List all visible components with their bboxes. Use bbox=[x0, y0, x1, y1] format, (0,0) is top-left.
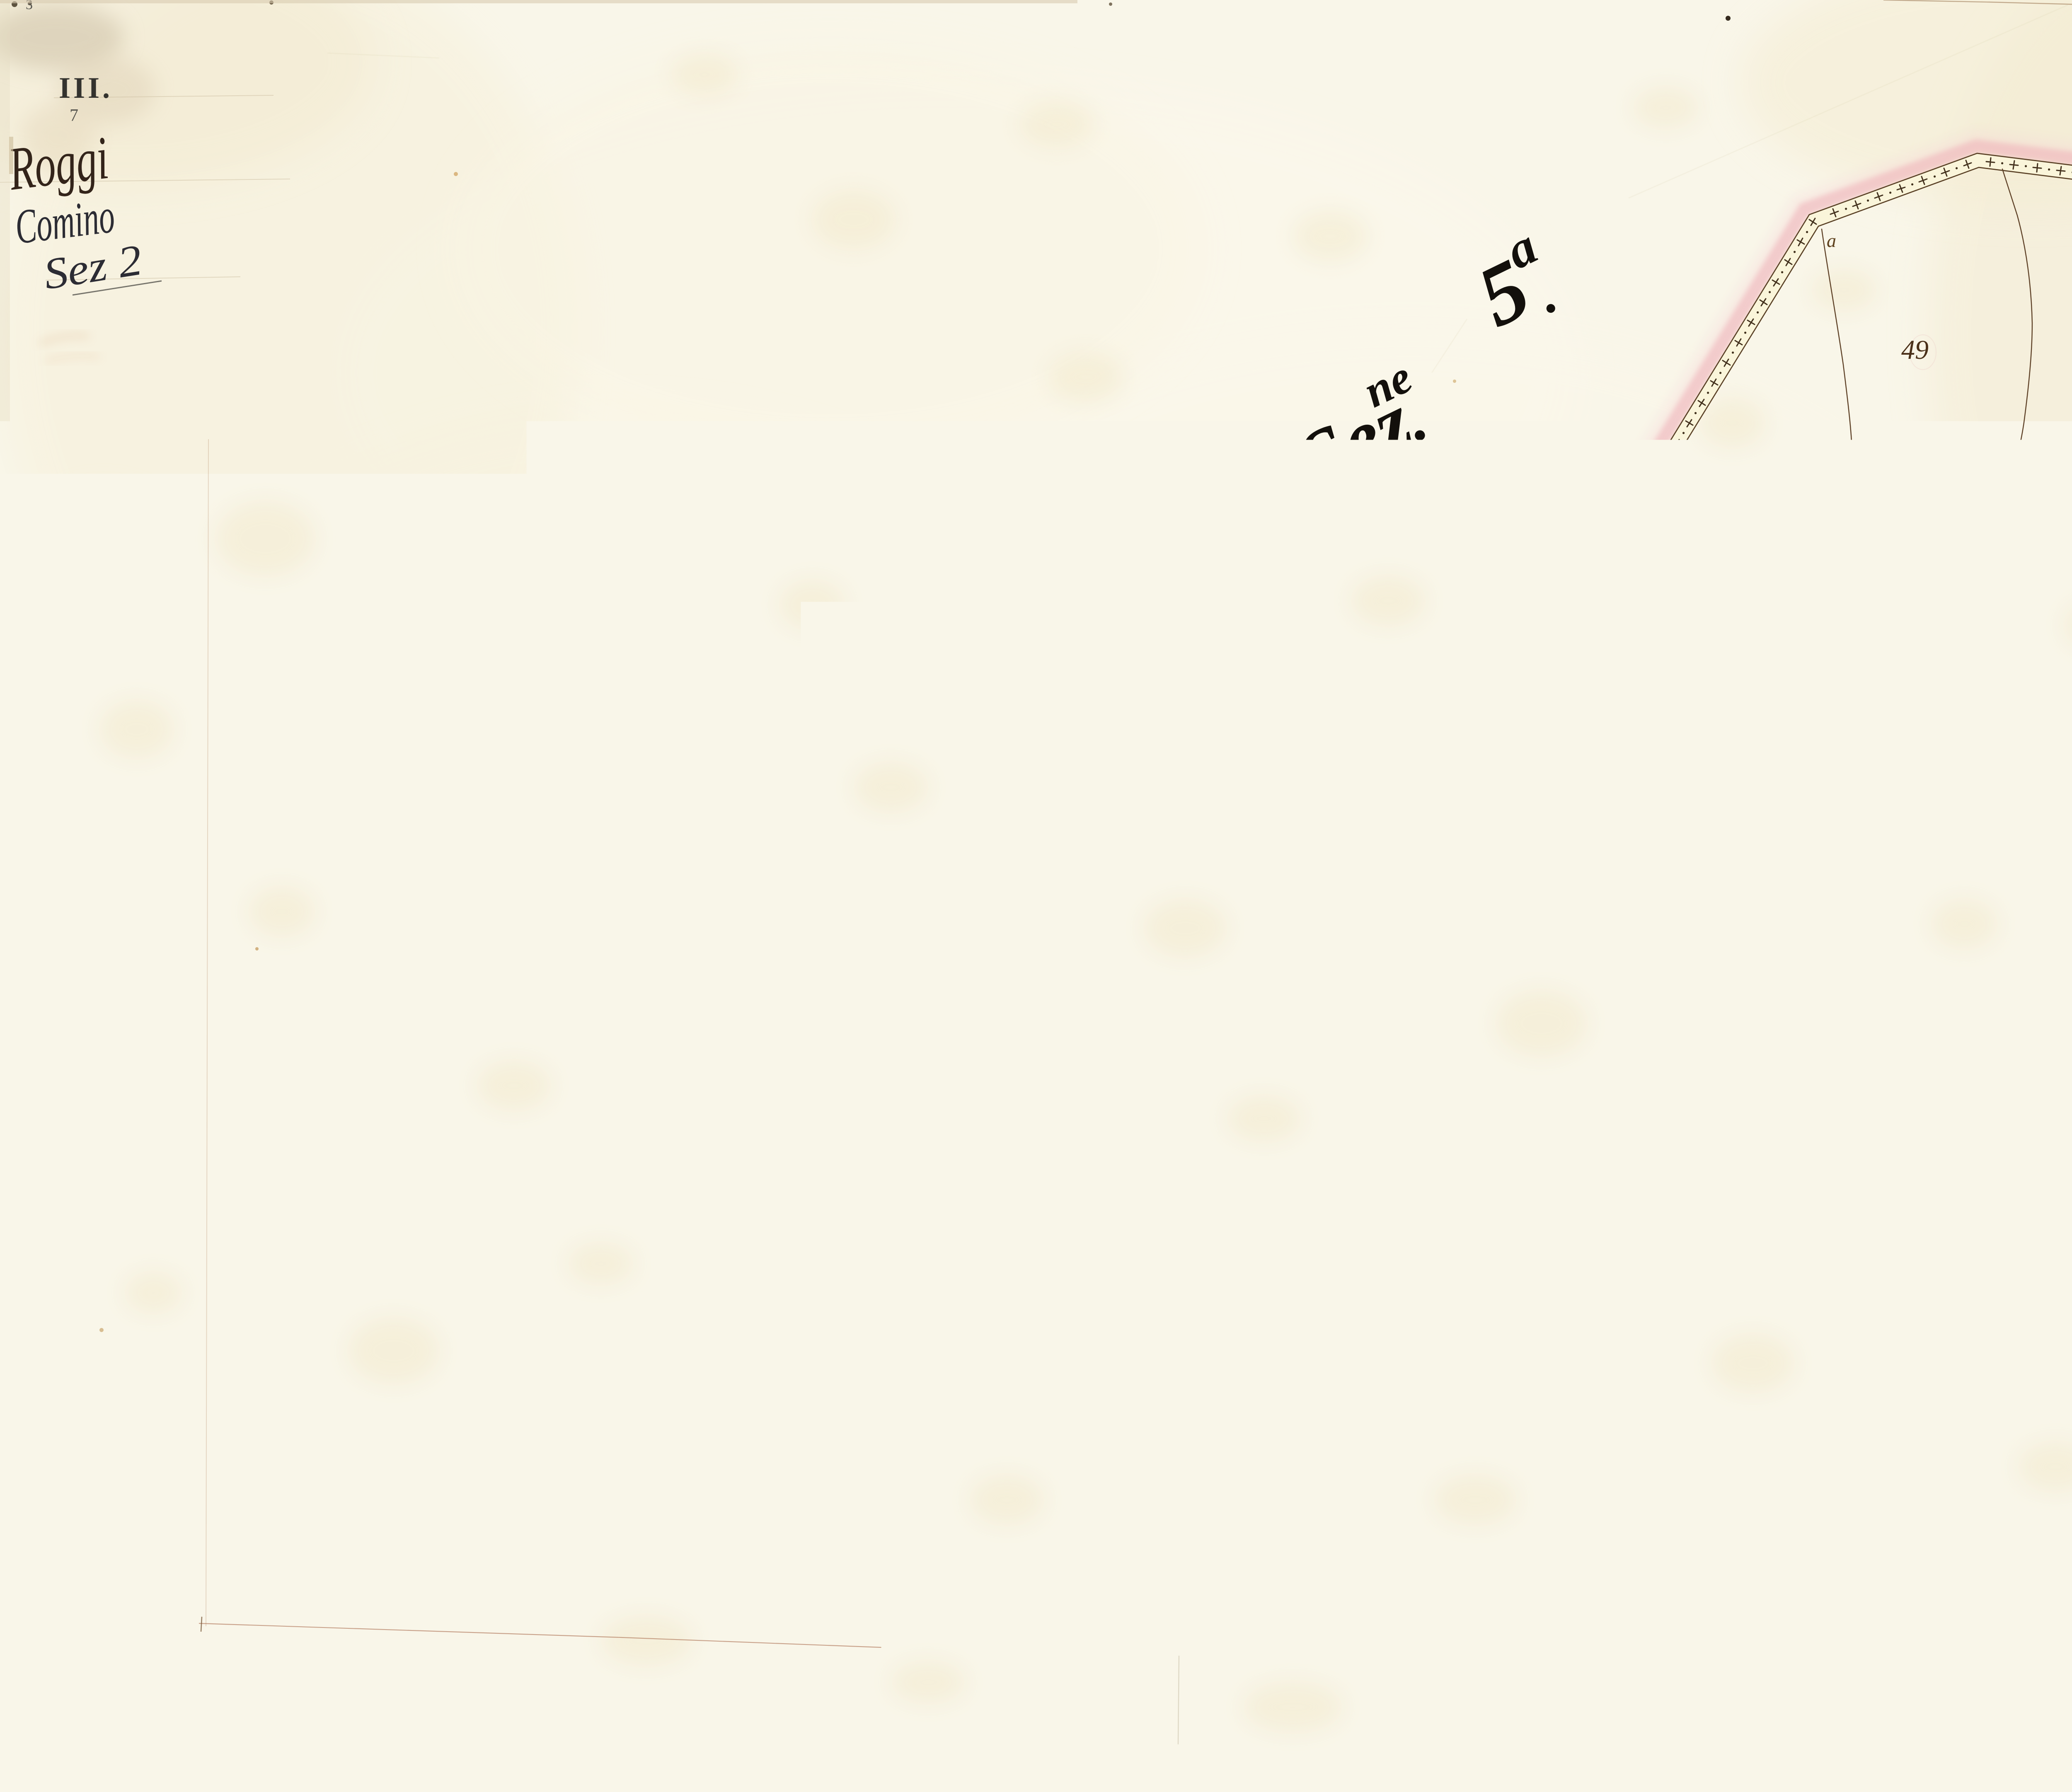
svg-text:7: 7 bbox=[70, 106, 78, 125]
svg-text:49: 49 bbox=[1901, 335, 1929, 365]
svg-text:III.: III. bbox=[59, 71, 113, 104]
svg-text:a: a bbox=[1827, 230, 1836, 251]
svg-text:49: 49 bbox=[1896, 429, 1944, 494]
svg-text:47.: 47. bbox=[1458, 929, 1493, 960]
svg-text:74 Sub. 6: 74 Sub. 6 bbox=[915, 1201, 987, 1233]
svg-text:29·: 29· bbox=[341, 1431, 370, 1458]
svg-text:T: T bbox=[590, 1202, 599, 1217]
svg-text:74: 74 bbox=[2006, 1438, 2070, 1495]
svg-text:48.: 48. bbox=[1837, 1166, 1870, 1194]
svg-text:9: 9 bbox=[2038, 1487, 2055, 1523]
